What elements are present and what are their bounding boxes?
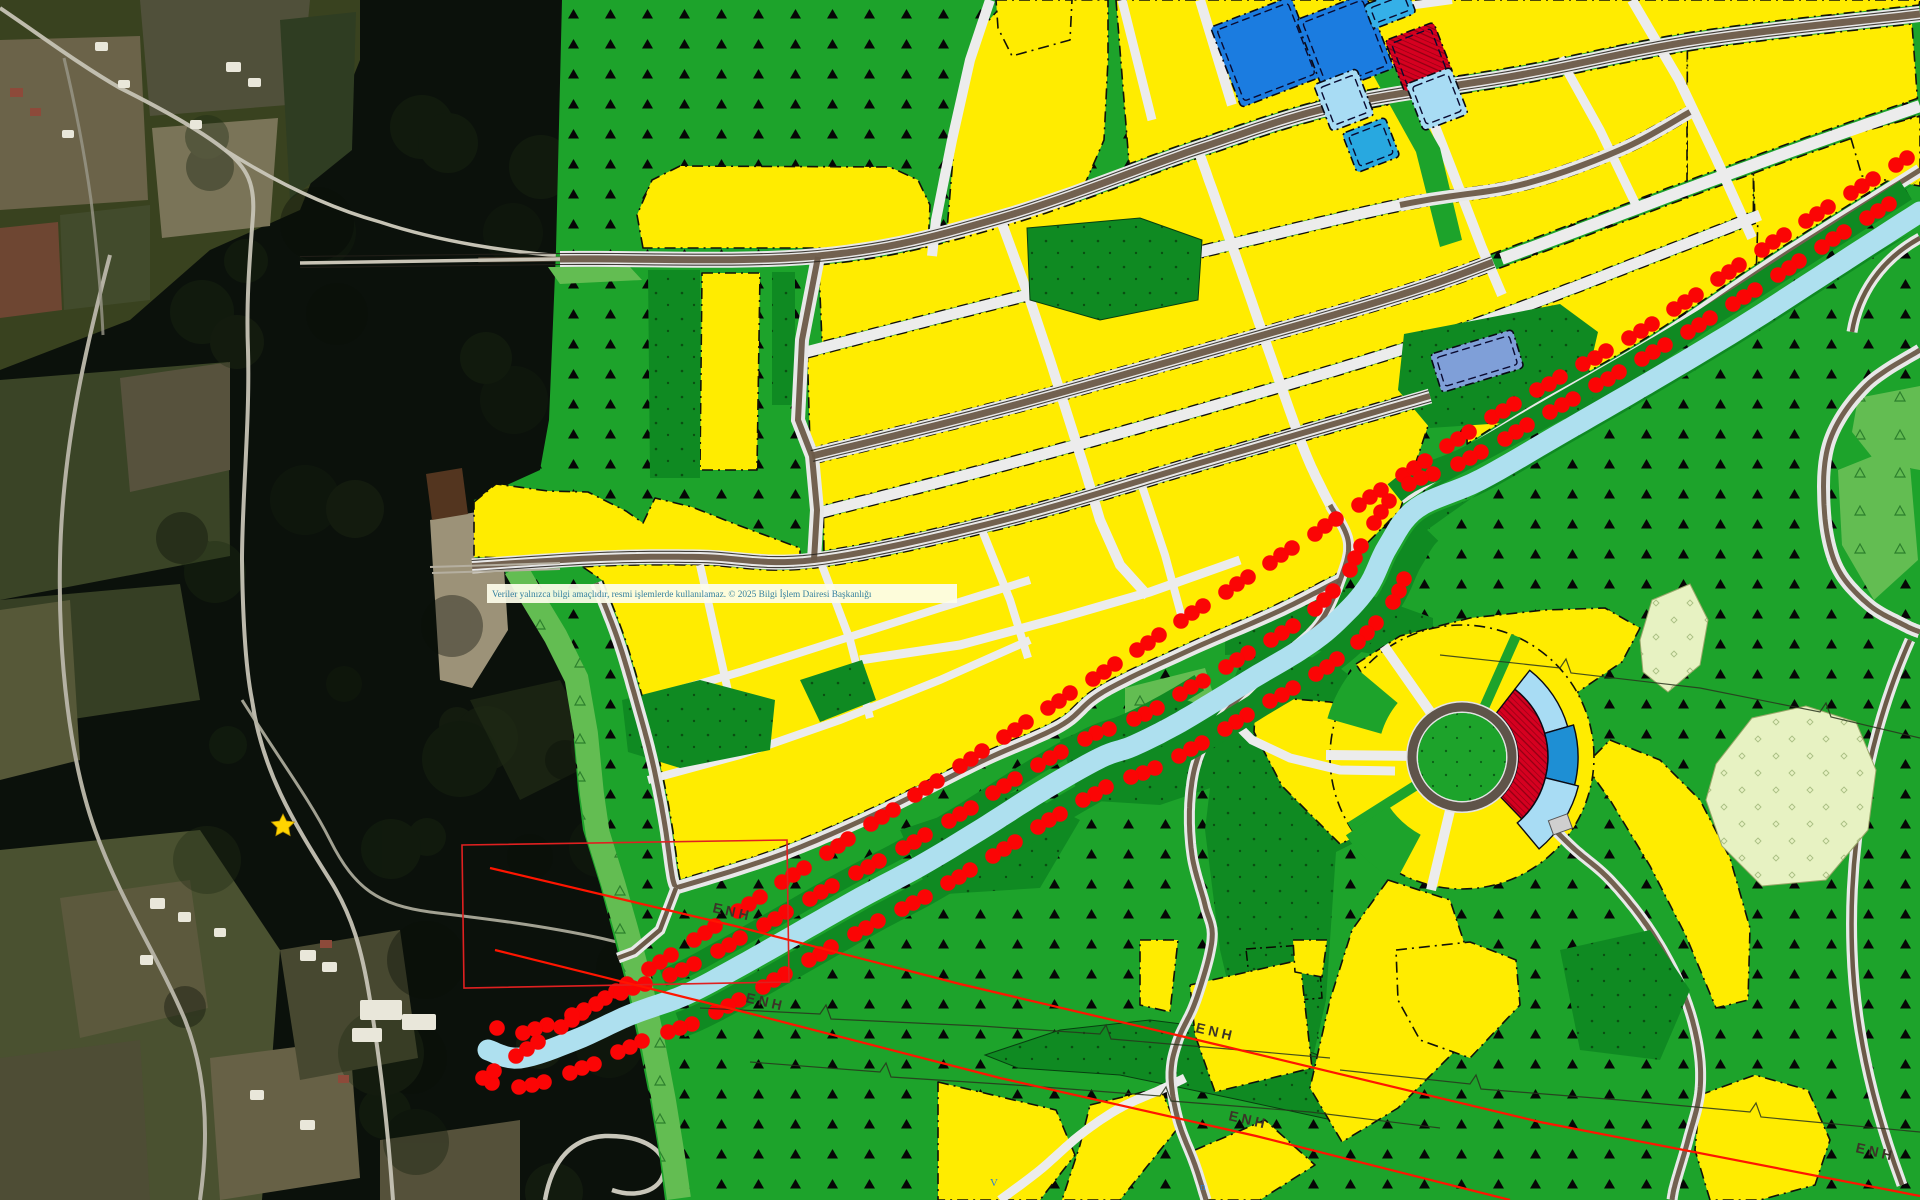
svg-text:n: n xyxy=(1200,1181,1206,1193)
svg-text:V: V xyxy=(990,1177,998,1189)
svg-text:Veriler yalnızca bilgi amaçlıd: Veriler yalnızca bilgi amaçlıdır, resmi … xyxy=(492,588,872,600)
